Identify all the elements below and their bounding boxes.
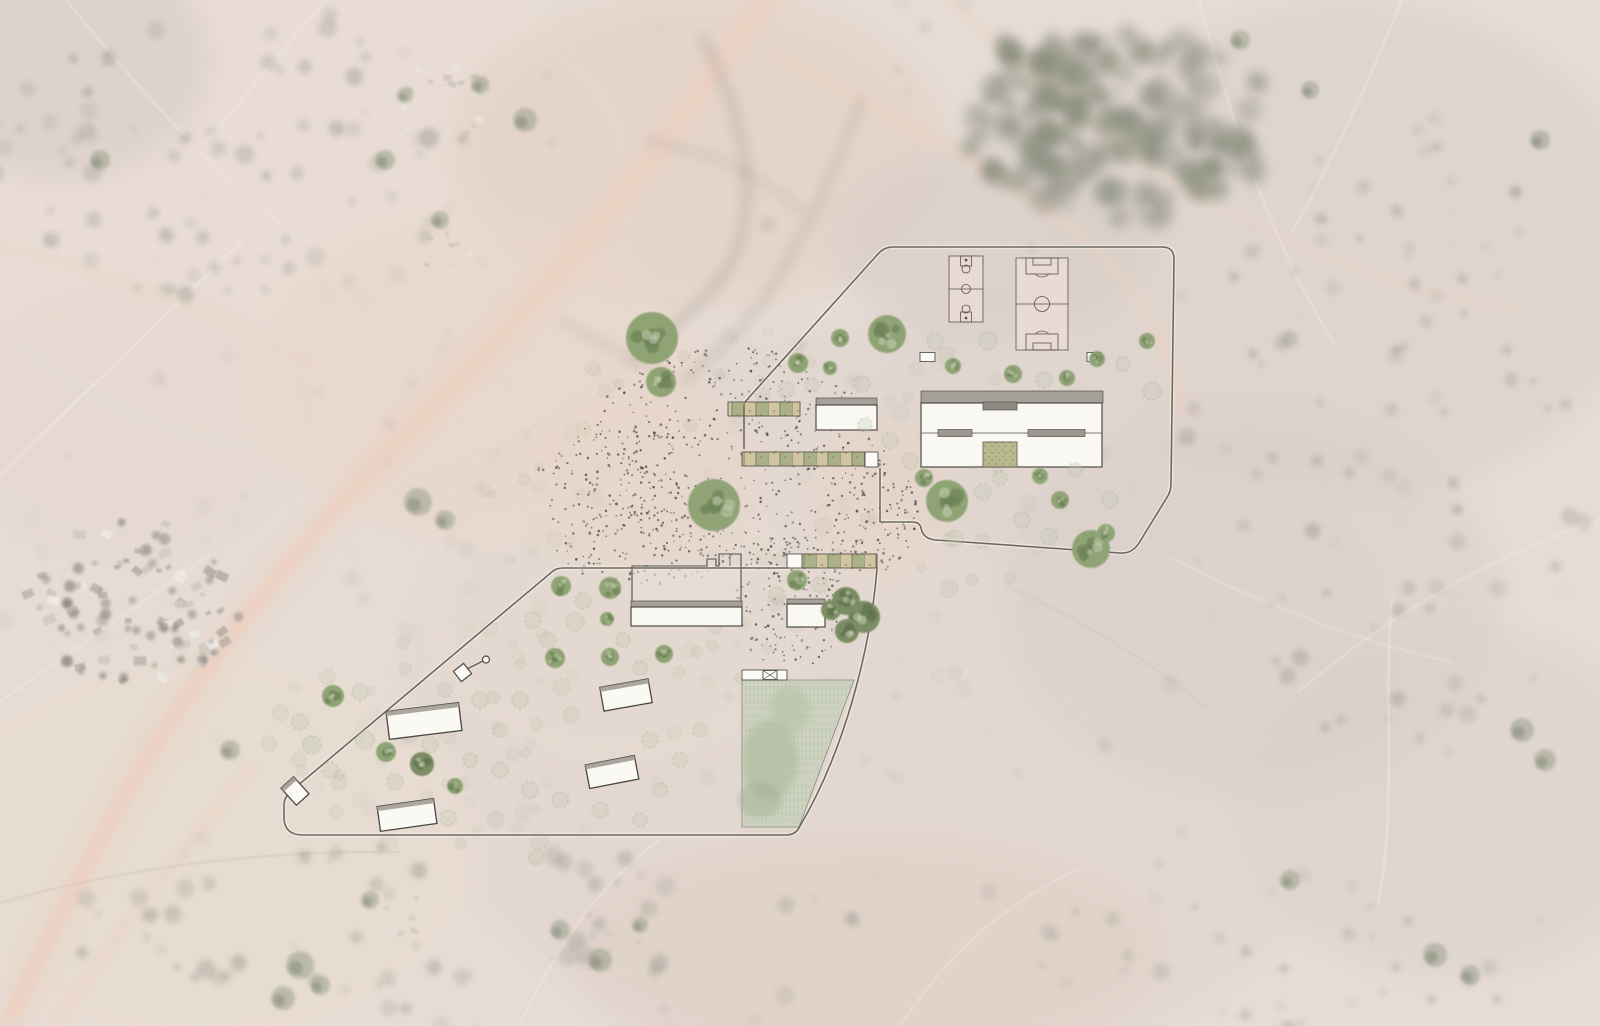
tree xyxy=(868,315,906,353)
tree xyxy=(1460,965,1480,985)
tree xyxy=(545,648,565,668)
tree xyxy=(642,732,658,748)
tree xyxy=(1068,463,1082,477)
tree xyxy=(626,312,678,364)
gatehouse-lower xyxy=(787,554,802,568)
tree xyxy=(1089,351,1105,367)
tree xyxy=(947,530,963,546)
tree xyxy=(902,453,918,469)
tree xyxy=(397,87,413,103)
tree xyxy=(1041,528,1057,544)
tree xyxy=(1097,524,1115,542)
tree xyxy=(926,480,968,522)
school-main-building xyxy=(921,391,1103,467)
tree xyxy=(540,632,556,648)
tree xyxy=(688,479,740,531)
tree xyxy=(927,333,943,349)
tree xyxy=(975,484,991,500)
field-gate-marker xyxy=(763,671,777,680)
corridor-link-west xyxy=(938,430,972,437)
tree xyxy=(471,76,489,94)
tree xyxy=(915,469,933,487)
tree xyxy=(552,792,568,808)
tree xyxy=(387,774,403,790)
tree xyxy=(422,737,438,753)
tree xyxy=(438,683,452,697)
tree xyxy=(945,358,961,374)
courtyard-garden xyxy=(983,442,1017,467)
tree xyxy=(90,150,110,170)
tree xyxy=(463,753,477,767)
tree xyxy=(821,600,841,620)
storage-building xyxy=(787,599,825,627)
tree xyxy=(633,661,647,675)
tree xyxy=(633,813,647,827)
tree xyxy=(352,684,368,700)
basketball-court xyxy=(949,256,983,322)
tree xyxy=(431,211,449,229)
tree xyxy=(632,917,648,933)
tree xyxy=(472,692,488,708)
tree xyxy=(440,810,456,826)
tree xyxy=(1534,749,1556,771)
tree xyxy=(512,692,528,708)
football-pitch xyxy=(1016,258,1068,350)
tree xyxy=(854,376,870,392)
tree xyxy=(292,714,308,730)
tree xyxy=(778,382,794,398)
tree xyxy=(286,951,314,979)
tree xyxy=(1004,365,1022,383)
tree xyxy=(993,471,1007,485)
shade-pergola-upper xyxy=(728,402,800,416)
tree xyxy=(1059,370,1075,386)
tree xyxy=(447,778,463,794)
tree xyxy=(1139,333,1155,349)
tree xyxy=(1032,468,1048,484)
tree xyxy=(271,986,295,1010)
tree xyxy=(588,948,612,972)
tree xyxy=(1116,357,1130,371)
tree xyxy=(858,418,872,432)
tree xyxy=(1280,870,1300,890)
tree xyxy=(1230,30,1250,50)
tree xyxy=(410,752,434,776)
tree xyxy=(835,619,859,643)
corridor-link-east xyxy=(1028,430,1085,437)
tree xyxy=(1051,491,1069,509)
tree xyxy=(376,742,396,762)
tree xyxy=(769,587,785,603)
tree xyxy=(1143,382,1161,400)
tree xyxy=(831,329,849,347)
tree xyxy=(601,648,619,666)
tree xyxy=(882,433,898,449)
tree xyxy=(653,783,667,797)
tree xyxy=(361,891,379,909)
tree xyxy=(1301,81,1319,99)
tree xyxy=(575,593,591,609)
shade-pergola-middle xyxy=(742,452,865,466)
tree xyxy=(566,613,584,631)
tree xyxy=(513,108,537,132)
tree xyxy=(812,577,828,593)
kiosk-west xyxy=(920,353,935,362)
tree xyxy=(303,736,321,754)
tree xyxy=(1510,718,1534,742)
tree xyxy=(592,802,608,818)
tree xyxy=(600,612,614,626)
tree xyxy=(1014,512,1030,528)
tree xyxy=(322,762,338,778)
tree xyxy=(805,378,819,392)
tree xyxy=(787,570,807,590)
tree xyxy=(1530,130,1550,150)
tree xyxy=(550,920,570,940)
tree xyxy=(979,332,997,350)
tree xyxy=(1036,372,1052,388)
tree xyxy=(404,488,432,516)
masterplan-svg xyxy=(0,0,1600,1026)
tree xyxy=(310,975,330,995)
tree xyxy=(599,577,621,599)
tree xyxy=(788,353,808,373)
tree xyxy=(616,633,630,647)
tree xyxy=(322,685,344,707)
tree xyxy=(375,150,395,170)
tree xyxy=(220,740,240,760)
site-plan-aerial-view xyxy=(0,0,1600,1026)
tree xyxy=(823,361,837,375)
shade-pergola-lower xyxy=(802,554,877,568)
tree xyxy=(655,645,673,663)
entrance-canopy xyxy=(983,402,1017,410)
gatehouse-upper xyxy=(865,452,878,467)
tree xyxy=(693,723,707,737)
tree xyxy=(356,731,374,749)
tree xyxy=(435,510,455,530)
tree xyxy=(1102,492,1118,508)
tree xyxy=(522,782,538,798)
tree xyxy=(646,367,676,397)
tree xyxy=(551,576,571,596)
tree xyxy=(673,753,687,767)
tree xyxy=(525,612,541,628)
tree xyxy=(493,723,507,737)
tree xyxy=(492,762,508,778)
tree xyxy=(1423,943,1447,967)
